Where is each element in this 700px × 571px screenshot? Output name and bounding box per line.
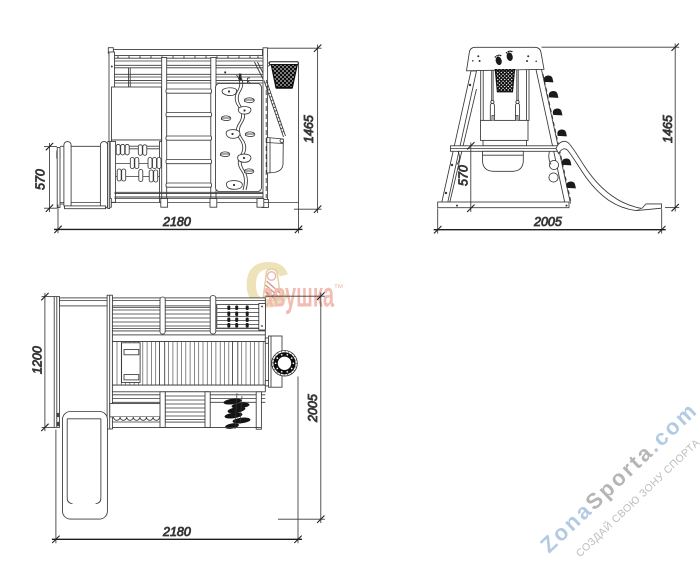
svg-text:™: ™ (334, 283, 344, 294)
svg-text:2005: 2005 (533, 215, 562, 229)
svg-text:1465: 1465 (302, 115, 316, 143)
svg-text:авушка: авушка (262, 276, 334, 315)
svg-text:1465: 1465 (661, 115, 675, 143)
svg-text:570: 570 (34, 169, 48, 190)
svg-text:2180: 2180 (162, 525, 191, 539)
svg-text:570: 570 (457, 165, 471, 186)
svg-text:2180: 2180 (162, 215, 191, 229)
svg-text:1200: 1200 (31, 346, 45, 374)
svg-text:2005: 2005 (306, 394, 320, 423)
